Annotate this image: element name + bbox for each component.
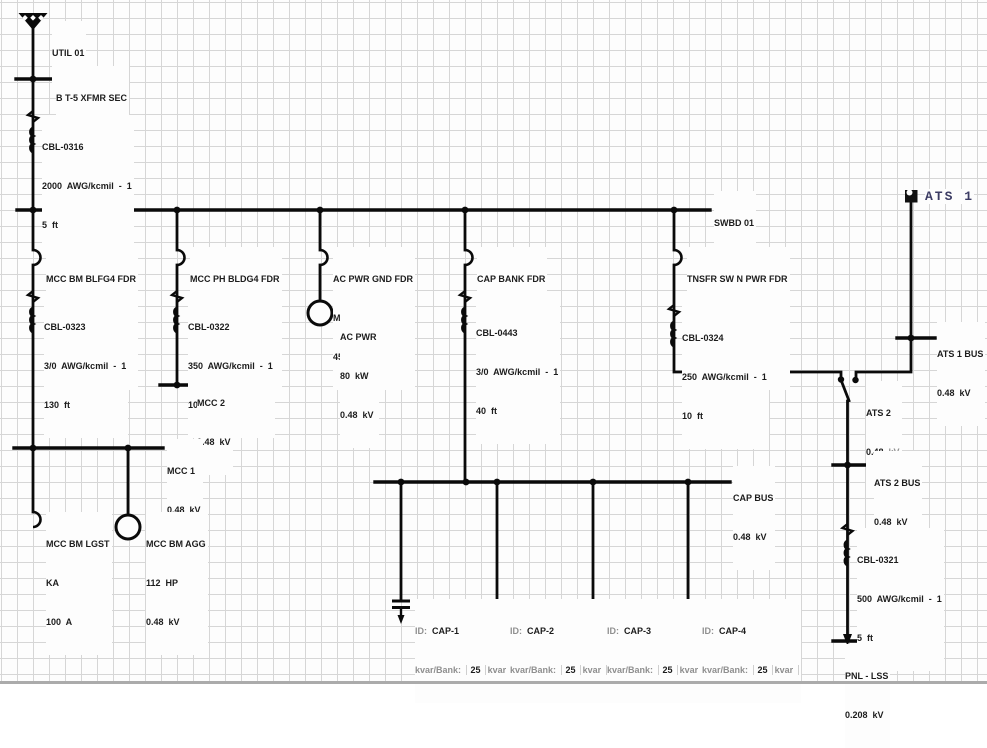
cap2-label: ID: CAP-2 kvar/Bank: 25kvar — [510, 599, 609, 703]
ats1-bus-label: ATS 1 BUS 0.48 kV — [937, 322, 985, 426]
mcc-bm-agg-label: MCC BM AGG 112 HP 0.48 kV — [146, 512, 208, 655]
breaker-icon[interactable] — [674, 250, 682, 265]
cbl0316-label: CBL-0316 2000 AWG/kcmil - 1 5 ft — [42, 115, 134, 258]
ats1-icon[interactable] — [905, 190, 918, 203]
breaker-icon[interactable] — [33, 250, 41, 265]
mcc-bm-lgst-label: MCC BM LGST KA 100 A — [46, 512, 112, 655]
breaker-icon[interactable] — [177, 250, 185, 265]
ats1-label[interactable]: ATS 1 — [925, 189, 974, 204]
mcc-bm-agg-motor-icon[interactable] — [116, 515, 140, 539]
breaker-icon[interactable] — [465, 250, 473, 265]
cbl0443-label: CBL-0443 3/0 AWG/kcmil - 1 40 ft — [476, 301, 560, 444]
cbl0324-label: CBL-0324 250 AWG/kcmil - 1 10 ft — [682, 306, 769, 449]
breaker-icon[interactable] — [320, 250, 328, 265]
ac-pwr-label: AC PWR 80 kW 0.48 kV — [340, 305, 379, 448]
breaker-icon[interactable] — [33, 512, 41, 527]
cbl0323-label: CBL-0323 3/0 AWG/kcmil - 1 130 ft — [44, 295, 128, 438]
cap-bus-label: CAP BUS 0.48 kV — [733, 466, 775, 570]
capacitor-icon-cap1[interactable] — [392, 601, 410, 624]
pnl-lss-label: PNL - LSS 0.208 kV — [845, 644, 890, 748]
cap3-label: ID: CAP-3 kvar/Bank: 25kvar — [607, 599, 706, 703]
cap1-label: ID: CAP-1 kvar/Bank: 25kvar — [415, 599, 514, 703]
ats2-switch-icon[interactable] — [838, 376, 859, 402]
oneline-canvas[interactable]: UTIL 01 B T-5 XFMR SEC 0.48 kV CBL-0316 … — [0, 0, 987, 684]
ac-pwr-load-icon[interactable] — [308, 301, 332, 325]
cap4-label: ID: CAP-4 kvar/Bank: 25kvar — [702, 599, 801, 703]
utility-icon[interactable] — [19, 13, 48, 30]
